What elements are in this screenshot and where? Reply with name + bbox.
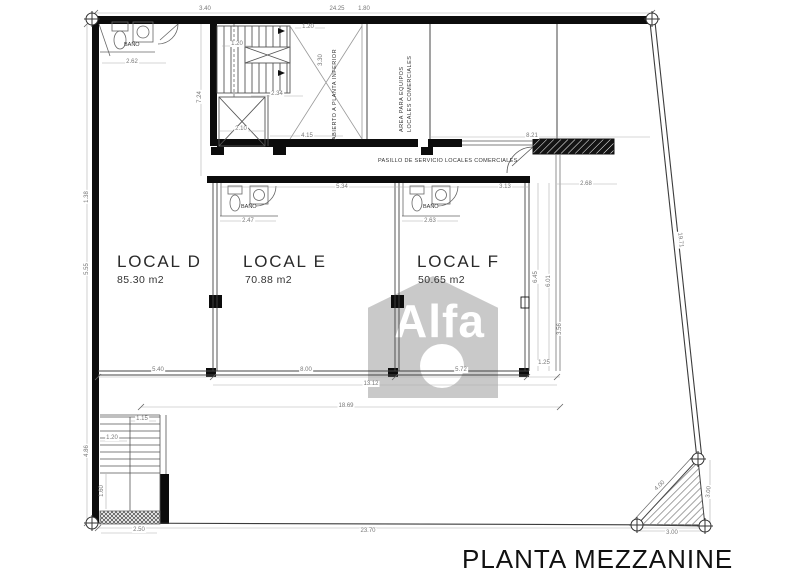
dimension-label: 1.15 [135,416,149,422]
plan-title: PLANTA MEZZANINE [462,544,733,575]
hatched-wall-segment [533,139,614,154]
dimension-label: 13.12 [362,381,379,387]
open-to-below-zone [290,24,362,139]
corridor-details [462,141,533,173]
dimension-label: 3.00 [665,530,679,536]
bano-label-e: BAÑO [241,204,257,210]
equipos-label: AREA PARA EQUIPOS LOCALES COMERCIALES [399,42,413,132]
equipment-room [367,24,557,139]
dimension-label: 1.25 [537,360,551,366]
dimension-label: 1.38 [84,190,90,204]
dimension-label: 6.01 [546,274,552,288]
dimension-label: 2.34 [270,91,284,97]
equipos-line2: LOCALES COMERCIALES [407,42,413,132]
staircase-lower [100,415,166,524]
staircase-upper [217,26,290,93]
dimension-label: 24.25 [328,6,345,12]
pasillo-label: PASILLO DE SERVICIO LOCALES COMERCIALES [378,158,518,164]
dimension-label: 5.34 [335,184,349,190]
bano-label-d: BAÑO [124,42,140,48]
dimension-label: 1.60 [99,484,105,498]
dimension-label: 8.21 [525,133,539,139]
dimension-label: 2.63 [423,218,437,224]
dimension-label: 5.40 [151,367,165,373]
bathroom-f [402,183,460,221]
dimension-label: 23.70 [359,528,376,534]
dimension-label: 2.10 [234,126,248,132]
dimension-label: 1.20 [230,41,244,47]
elevator-shaft [219,95,268,146]
dimension-lines [87,13,705,533]
dimension-label: 3.30 [318,53,324,67]
dimension-label: 4.86 [84,444,90,458]
dimension-label: 5.55 [84,262,90,276]
dimension-label: 3.56 [557,322,563,336]
equipos-line1: AREA PARA EQUIPOS [399,42,405,132]
bathroom-e [220,183,278,221]
dimension-label: 2.50 [132,527,146,533]
dimension-label: 18.69 [337,403,354,409]
local-d-label: LOCAL D [117,252,202,272]
dimension-label: 2.47 [241,218,255,224]
dimension-label: 4.15 [300,133,314,139]
dimension-label: 3.40 [198,6,212,12]
local-e-label: LOCAL E [243,252,327,272]
local-d-area: 85.30 m2 [117,274,164,286]
dimension-label: 7.24 [197,90,203,104]
dimension-label: 6.45 [533,270,539,284]
floor-plan-drawing: Alfa [0,0,800,587]
dimension-label: 1.20 [301,24,315,30]
dimension-label: 1.80 [357,6,371,12]
dimension-label: 3.13 [498,184,512,190]
local-e-area: 70.88 m2 [245,274,292,286]
dimension-label: 1.20 [105,435,119,441]
local-f-label: LOCAL F [417,252,500,272]
dimension-label: 2.62 [125,59,139,65]
bano-label-f: BAÑO [423,204,439,210]
dimension-label: 5.72 [454,367,468,373]
abierto-label: ABIERTO A PLANTA INFERIOR [332,40,338,140]
dimension-label: 2.68 [579,181,593,187]
dimension-label: 8.00 [299,367,313,373]
local-f-area: 50.65 m2 [418,274,465,286]
